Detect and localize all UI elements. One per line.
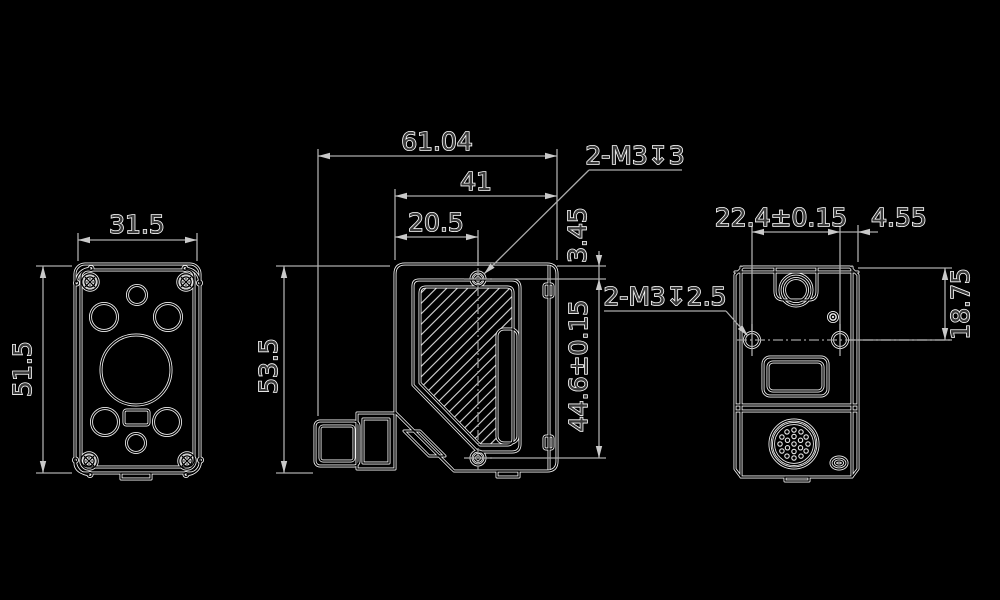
- dim-side-height: 53.5: [254, 338, 283, 394]
- callout-back-thread: 2-M3↧2.5: [603, 282, 726, 311]
- dim-front-to-hole: 20.5: [408, 208, 464, 237]
- dim-front-width: 31.5: [109, 210, 165, 239]
- callout-top-thread: 2-M3↧3: [585, 141, 684, 170]
- dim-front-height: 51.5: [8, 341, 37, 397]
- dim-top-to-back-hole: 18.75: [946, 268, 975, 340]
- technical-drawing-canvas: 31.5 51.5 53.5 61.04 41 20.5 3.45 44.6±0…: [0, 0, 1000, 600]
- dim-top-to-side-hole: 3.45: [563, 207, 592, 263]
- dim-side-hole-spacing: 44.6±0.15: [564, 300, 593, 432]
- dim-body-depth: 41: [460, 167, 492, 196]
- dim-back-hole-to-edge: 4.55: [871, 203, 927, 232]
- sensor-three-view-drawing: 31.5 51.5 53.5 61.04 41 20.5 3.45 44.6±0…: [0, 0, 1000, 600]
- dim-back-hole-spacing: 22.4±0.15: [715, 203, 847, 232]
- dim-total-depth: 61.04: [401, 127, 473, 156]
- m12-connector-pins: [778, 428, 810, 460]
- window-clear-strip-fill: [497, 329, 518, 443]
